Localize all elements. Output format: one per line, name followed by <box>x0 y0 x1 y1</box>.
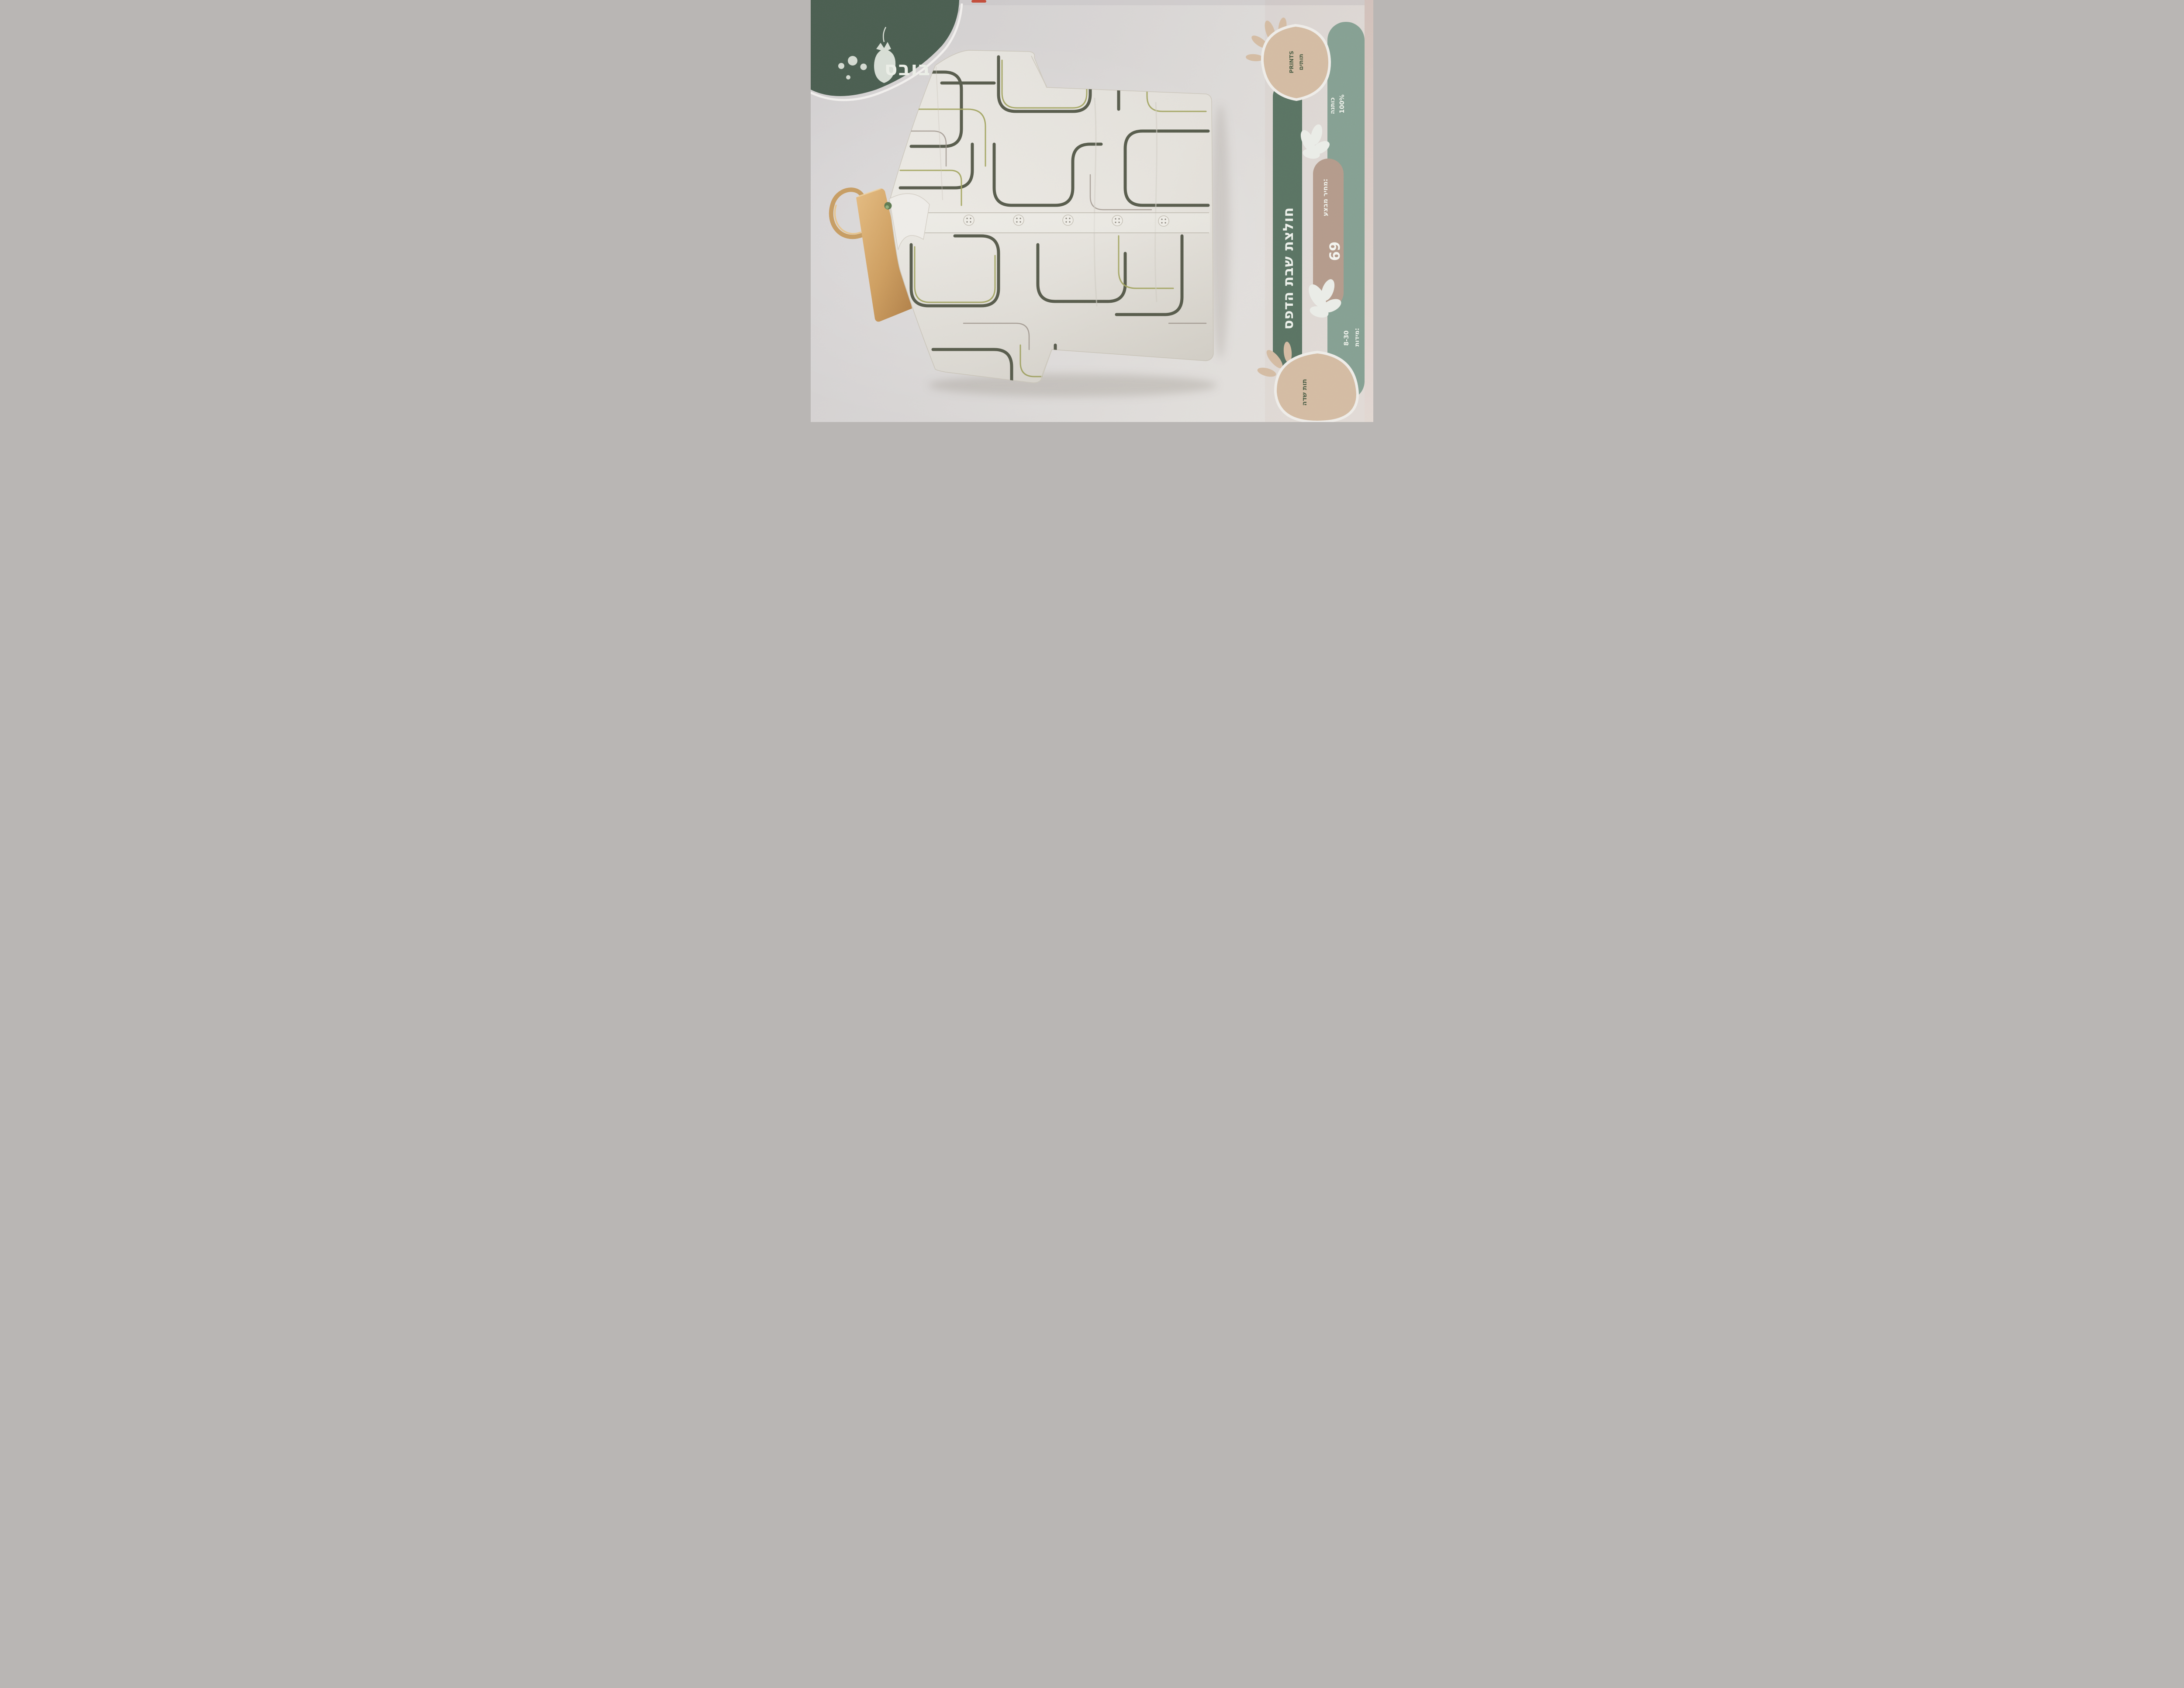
shirt-button <box>1013 215 1024 225</box>
brand-logo-text: בובס <box>885 58 931 80</box>
strawberry-body <box>1275 352 1358 422</box>
brand-tag-center <box>885 205 889 209</box>
price-text: 69 <box>1327 242 1343 261</box>
strawberry-body <box>1262 25 1330 100</box>
title-text: חולצת שבת הדפס <box>1280 207 1296 330</box>
price-label: מחיר מבצע: <box>1321 179 1329 216</box>
hanger-hook-icon <box>831 190 862 237</box>
cotton-line2: כותנה <box>1329 97 1336 114</box>
button-placket <box>898 213 1210 233</box>
shirt-button <box>1063 215 1073 225</box>
sizes-label: מידות: <box>1354 328 1361 346</box>
shirt-button <box>1158 216 1169 226</box>
catalog-photo: בובס חולצת שבת הדפס 100% כותנה מחיר מבצע… <box>811 0 1373 422</box>
prints-text: PRINTS <box>1288 51 1295 73</box>
shirt-button <box>964 215 974 225</box>
cotton-line1: 100% <box>1339 94 1346 113</box>
shirt-button <box>1112 215 1123 226</box>
red-sliver <box>971 0 986 3</box>
strawberry-text: תותים <box>1298 54 1305 70</box>
bottom-strawberry-text: תות שדה <box>1300 379 1308 405</box>
shirt <box>872 44 1230 389</box>
sizes-value: 8-30 <box>1343 330 1350 346</box>
photo-scene: בובס חולצת שבת הדפס 100% כותנה מחיר מבצע… <box>811 0 1373 422</box>
